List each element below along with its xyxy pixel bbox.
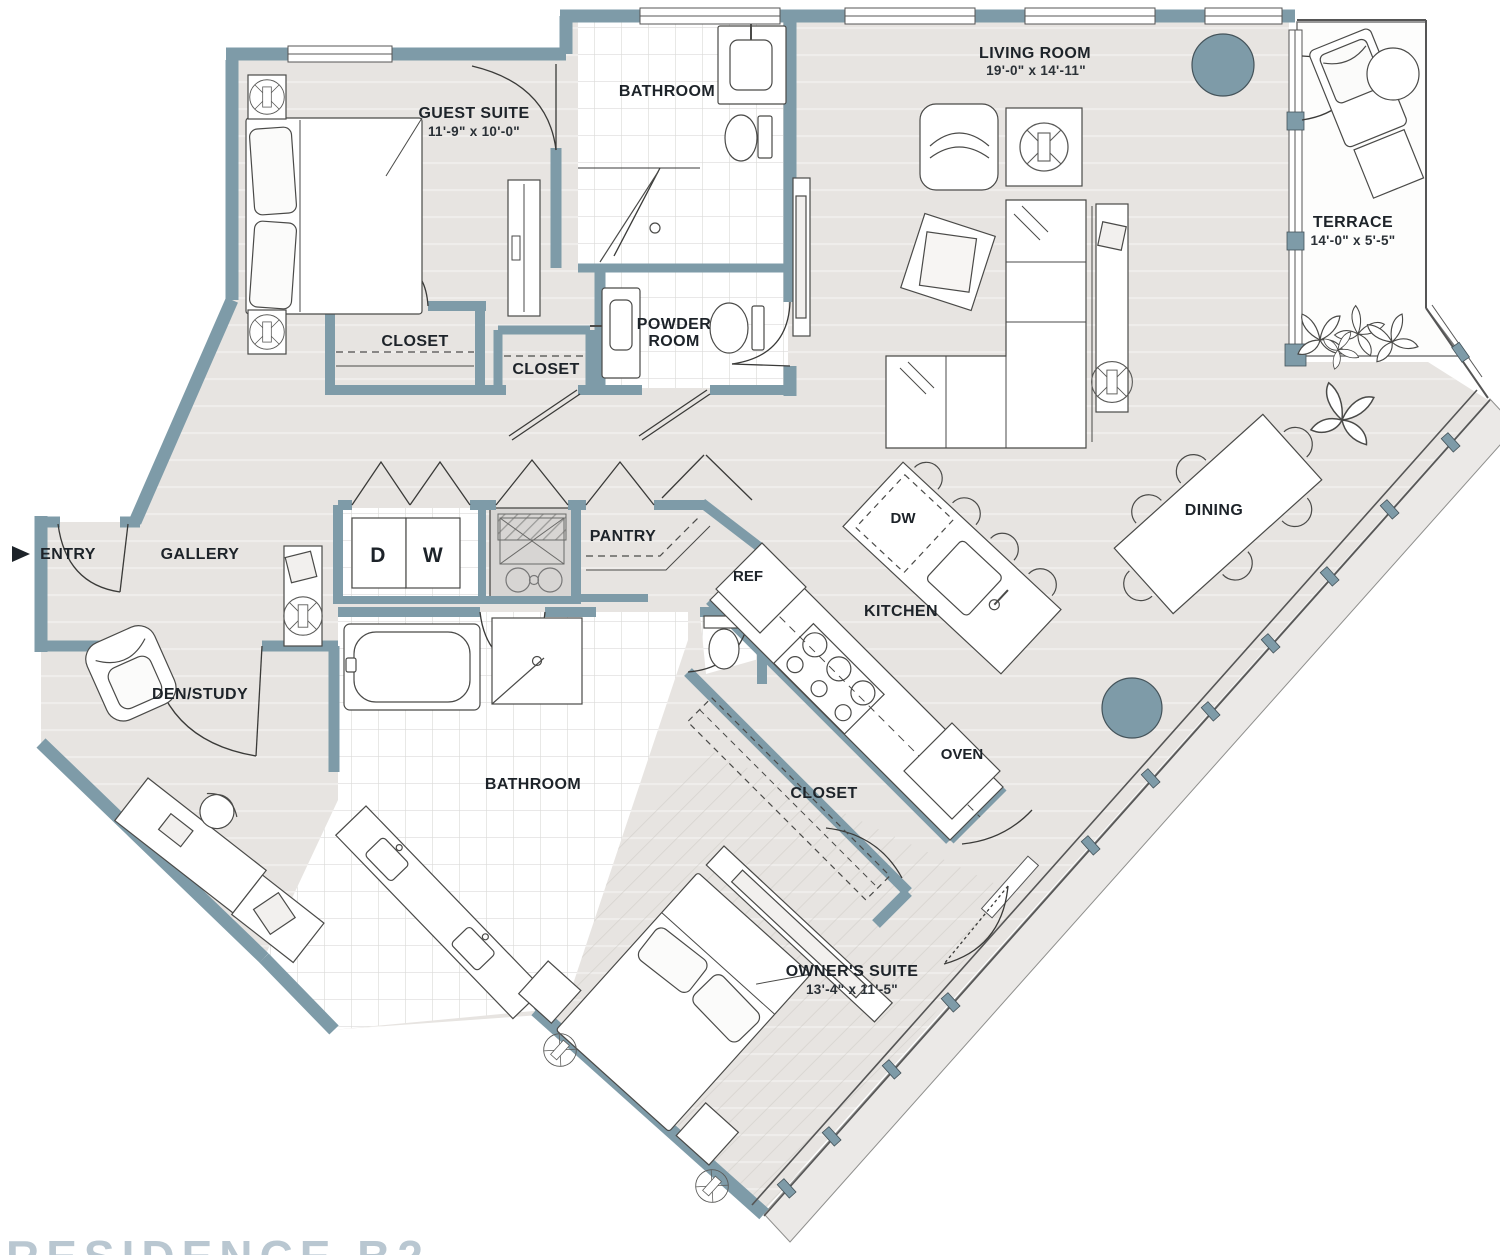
room-label-guest-suite: GUEST SUITE [418,105,529,122]
appliance-label-oven: OVEN [941,746,984,763]
floor-plan: GUEST SUITE 11'-9" x 10'-0" BATHROOM LIV… [0,0,1500,1255]
room-label-dining: DINING [1185,502,1243,519]
room-label-owner-suite: OWNER'S SUITE [786,963,919,980]
plan-title: RESIDENCE B2 [6,1230,430,1255]
dim-label-living-room: 19'-0" x 14'-11" [986,63,1086,78]
guest-bed [246,118,422,314]
room-label-kitchen: KITCHEN [864,603,938,620]
room-label-terrace: TERRACE [1313,214,1393,231]
dim-label-owner-suite: 13'-4" x 11'-5" [806,982,898,997]
room-label-gallery: GALLERY [161,546,240,563]
appliance-label-dryer: D [370,544,386,567]
room-label-pantry: PANTRY [590,528,656,545]
appliance-label-refrigerator: REF [733,568,763,585]
room-label-living-room: LIVING ROOM [979,45,1091,62]
entry-arrow-icon [12,546,30,562]
appliance-label-washer: W [423,544,443,567]
appliance-label-dishwasher: DW [891,510,917,527]
room-label-entry: ENTRY [40,546,96,563]
washer-dryer [352,518,460,588]
room-label-bathroom-top: BATHROOM [619,83,715,100]
room-label-closet-owner: CLOSET [790,785,857,802]
floor-plan-page: GUEST SUITE 11'-9" x 10'-0" BATHROOM LIV… [0,0,1500,1255]
dim-label-terrace: 14'-0" x 5'-5" [1311,233,1396,248]
gallery-console [284,546,322,646]
guest-dresser [508,180,540,316]
room-label-closet-guest: CLOSET [381,333,448,350]
room-label-bathroom-main: BATHROOM [485,776,581,793]
room-label-powder-1: POWDER [637,316,711,333]
room-label-closet-hall: CLOSET [512,361,579,378]
room-label-powder-2: ROOM [648,333,699,350]
dim-label-guest-suite: 11'-9" x 10'-0" [428,124,520,139]
room-label-den-study: DEN/STUDY [152,686,248,703]
